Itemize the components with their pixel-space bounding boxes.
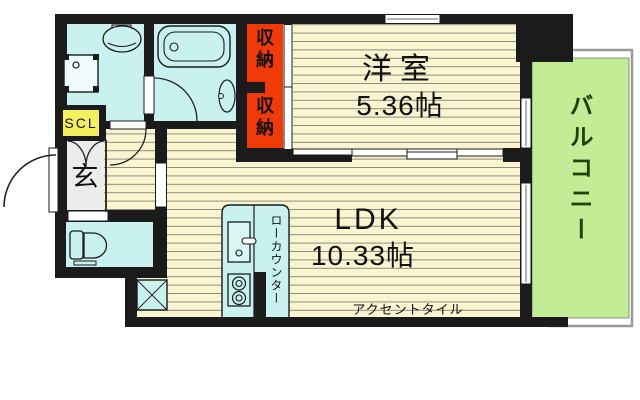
front-door-leaf xyxy=(49,148,58,212)
ldk-size: 10.33帖 xyxy=(283,242,443,270)
western-room-label: 洋室 xyxy=(320,55,480,85)
kitchen-pillar-wall xyxy=(254,272,266,318)
washbasin-icon xyxy=(103,25,141,52)
balcony-label: バルコニー xyxy=(566,93,590,248)
washing-machine-icon xyxy=(63,54,99,92)
ldk-label: LDK xyxy=(288,205,448,235)
front-door-swing xyxy=(4,155,56,207)
bathtub-icon xyxy=(158,26,230,67)
refrigerator-space-icon xyxy=(137,280,167,310)
partition-panel xyxy=(352,149,407,156)
hall-door-opening xyxy=(156,163,167,207)
partition-panel xyxy=(407,152,457,159)
floorplan: 洋室 5.36帖 LDK 10.33帖 バルコニー 収納 収納 ローカウンター … xyxy=(0,0,640,400)
bathroom-basin-icon xyxy=(219,80,236,112)
accent-tile-label: アクセントタイル xyxy=(343,303,473,316)
western-room-size: 5.36帖 xyxy=(320,92,480,120)
storage-upper-label: 収納 xyxy=(255,28,273,72)
storage-lower-label: 収納 xyxy=(255,96,273,140)
bathroom-door-leaf xyxy=(144,76,154,114)
shoe-closet-label: SCL xyxy=(62,116,100,130)
stove-icon xyxy=(228,274,250,306)
partition-panel xyxy=(457,149,503,156)
toilet-door-opening xyxy=(68,211,108,221)
entrance-label: 玄 xyxy=(66,164,104,191)
low-counter-label: ローカウンター xyxy=(270,214,282,305)
washroom-door-opening xyxy=(110,121,146,129)
